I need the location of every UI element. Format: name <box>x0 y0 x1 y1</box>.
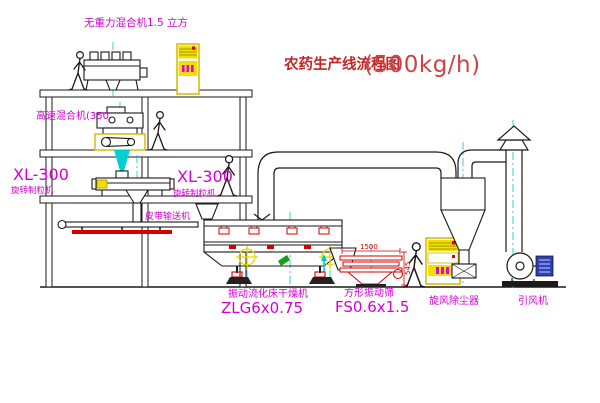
label-sieve-model: FS0.6x1.5 <box>335 298 409 316</box>
control-cabinet-top <box>177 44 199 94</box>
cad-drawing-canvas: 农药生产线流程图 (500kg/h) <box>0 0 600 403</box>
stack-cap-flare <box>500 140 528 150</box>
exhaust-stack <box>498 126 530 252</box>
cyclone-outlet-duct <box>458 150 506 178</box>
worker-second-floor <box>149 112 167 150</box>
stack-rain-cap <box>498 126 530 140</box>
dryer-green-part <box>278 255 290 266</box>
label-granulator-right-name: 旋转制粒机 <box>173 188 216 199</box>
column-right <box>240 97 246 287</box>
mixer-motor <box>140 68 147 77</box>
gravity-free-mixer <box>84 52 147 90</box>
label-fan: 引风机 <box>518 294 548 307</box>
label-granulator-left-name: 旋转制粒机 <box>11 185 54 196</box>
flow-diagram: 农药生产线流程图 (500kg/h) <box>0 0 600 403</box>
induced-draft-fan <box>502 253 558 287</box>
floor-slab-low <box>40 196 252 203</box>
label-granulator-left-model: XL-300 <box>13 165 69 184</box>
dryer-inlet-hopper <box>196 204 218 219</box>
label-cyclone: 旋风除尘器 <box>429 294 479 307</box>
fan-base <box>502 281 558 287</box>
mixer-body <box>84 60 140 80</box>
label-belt-conveyor: 皮带输送机 <box>145 210 190 222</box>
cyclone-cylinder <box>441 178 485 210</box>
fluid-bed-dryer <box>204 214 342 284</box>
title-capacity: (500kg/h) <box>364 52 481 78</box>
floor-slab-mid <box>40 150 252 157</box>
fan-motor <box>536 256 553 276</box>
label-high-speed-mixer: 高速混合机(350 <box>36 109 109 122</box>
conveyor-red-band <box>72 230 172 234</box>
floor-slab-top <box>40 90 252 97</box>
dim-1500: 1500 <box>360 243 378 251</box>
indicator-light <box>192 47 195 50</box>
mixer-discharge <box>106 80 120 90</box>
drawing-title: 农药生产线流程图 (500kg/h) <box>283 52 481 78</box>
cyan-feed-funnel <box>114 150 130 171</box>
label-dryer-model: ZLG6x0.75 <box>221 299 303 317</box>
dim-545: 545 <box>404 262 412 275</box>
exhaust-duct <box>258 152 456 220</box>
conveyor-belt <box>62 222 198 227</box>
label-granulator-right-model: XL-300 <box>177 167 233 186</box>
label-gravity-mixer: 无重力混合机1.5 立方 <box>84 16 188 29</box>
